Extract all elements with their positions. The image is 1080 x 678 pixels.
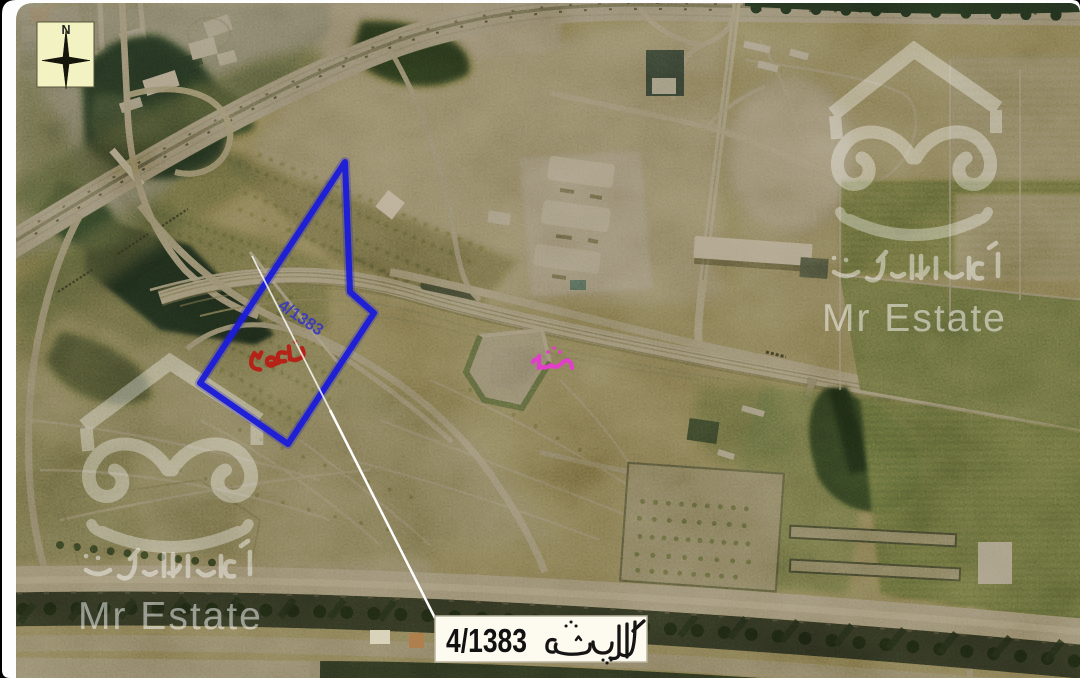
svg-text:Mr Estate: Mr Estate [78, 595, 263, 638]
svg-text:4/1383: 4/1383 [446, 622, 527, 659]
svg-text:Mr Estate: Mr Estate [822, 297, 1007, 340]
svg-text:N: N [61, 23, 70, 37]
